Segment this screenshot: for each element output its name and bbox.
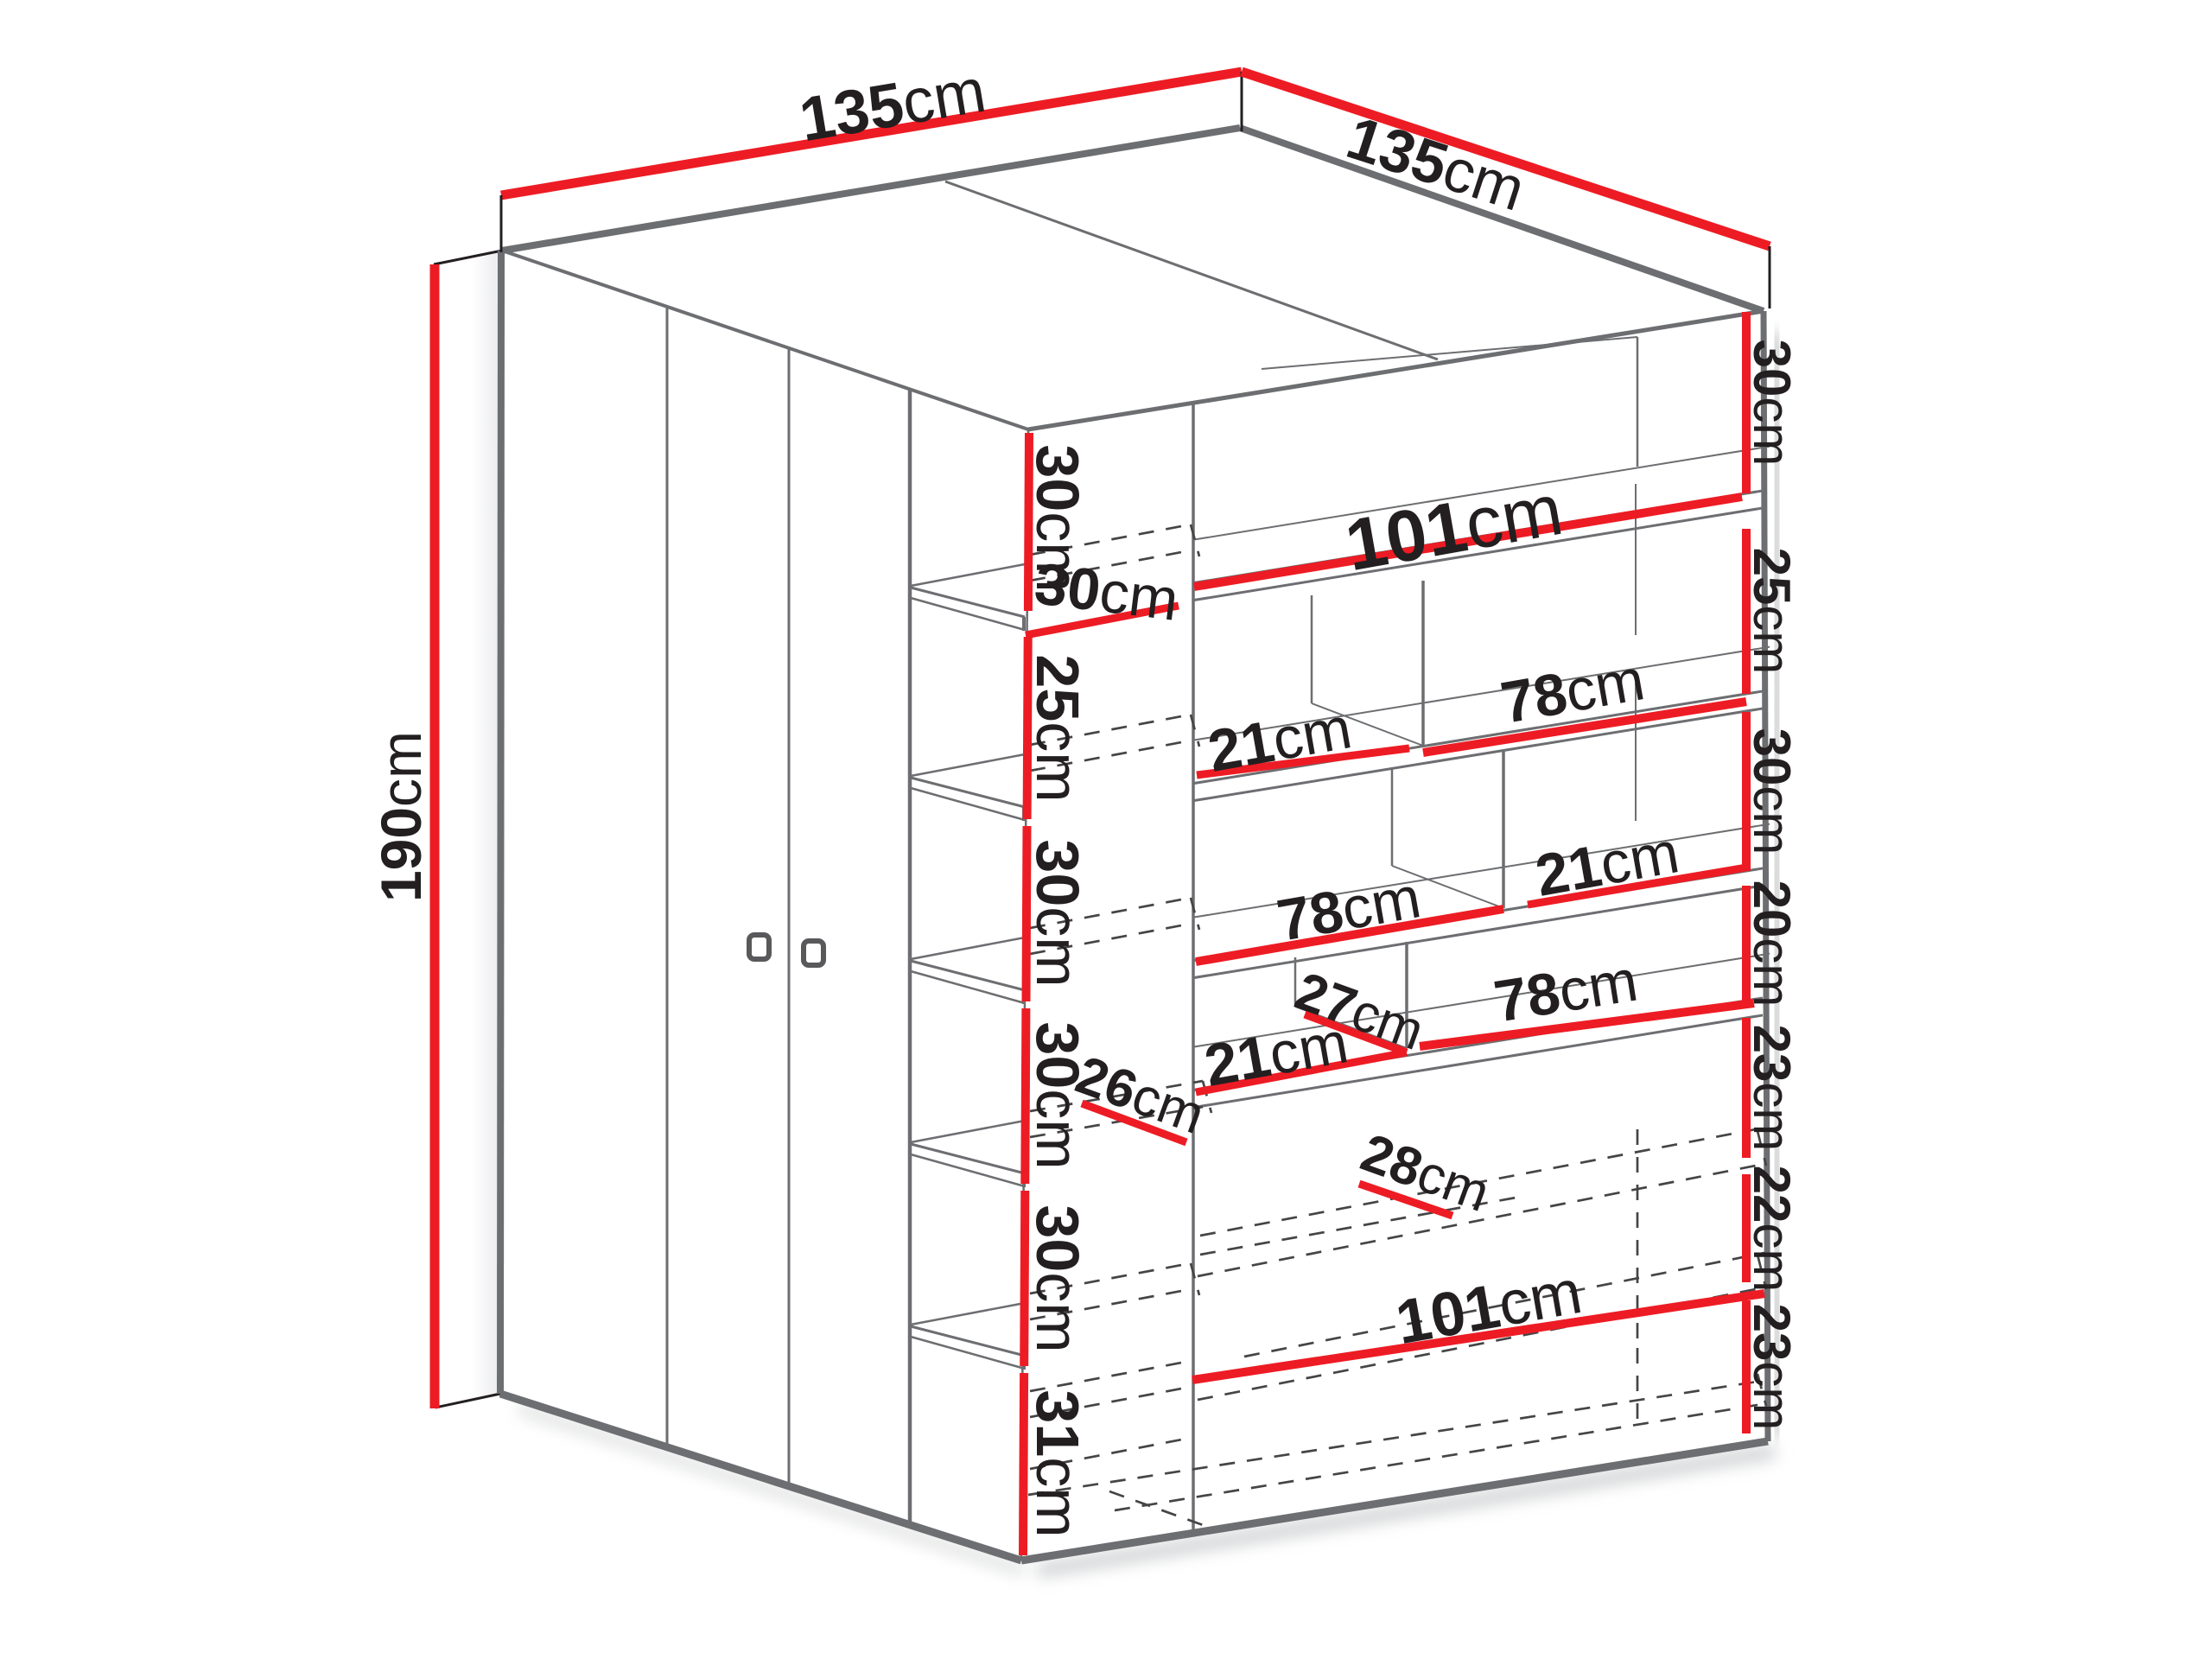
svg-text:25cm: 25cm [1024, 654, 1091, 802]
svg-text:30cm: 30cm [1024, 1205, 1091, 1352]
svg-text:23cm: 23cm [1743, 1025, 1801, 1152]
svg-text:30cm: 30cm [1024, 839, 1091, 987]
svg-text:22cm: 22cm [1743, 1166, 1801, 1293]
svg-text:30cm: 30cm [1743, 728, 1801, 855]
svg-text:31cm: 31cm [1024, 1389, 1091, 1537]
svg-text:20cm: 20cm [1743, 880, 1801, 1007]
svg-text:25cm: 25cm [1743, 548, 1801, 675]
svg-text:30cm: 30cm [1743, 340, 1801, 467]
svg-text:23cm: 23cm [1743, 1304, 1801, 1431]
svg-text:190cm: 190cm [369, 731, 433, 902]
